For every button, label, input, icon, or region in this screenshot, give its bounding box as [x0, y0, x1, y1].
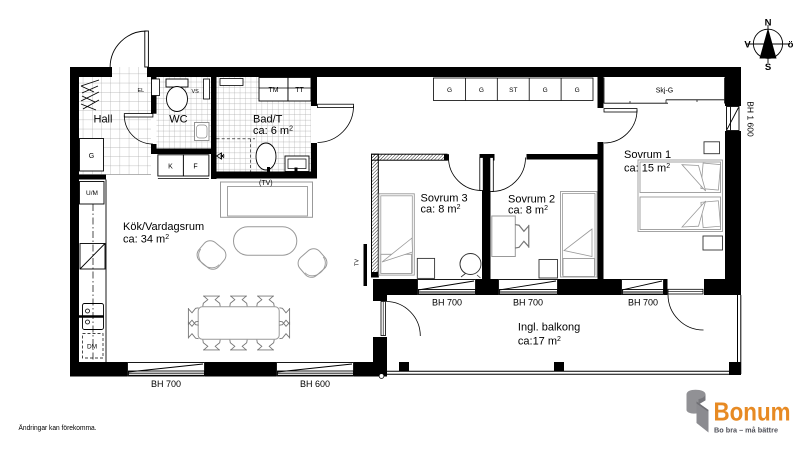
svg-text:TV: TV: [355, 259, 361, 266]
svg-text:BH 700: BH 700: [628, 298, 658, 308]
svg-text:BH 1 600: BH 1 600: [746, 101, 756, 137]
svg-text:TT: TT: [295, 87, 304, 94]
svg-text:ca:17 m2: ca:17 m2: [518, 335, 561, 347]
svg-text:G: G: [479, 87, 484, 94]
svg-text:Bad/T: Bad/T: [253, 114, 283, 126]
svg-text:BH 600: BH 600: [300, 379, 330, 389]
svg-text:ST: ST: [509, 87, 517, 94]
svg-text:Ingl. balkong: Ingl. balkong: [518, 321, 580, 333]
svg-text:G: G: [89, 153, 94, 160]
svg-text:ca: 8 m2: ca: 8 m2: [421, 204, 461, 216]
svg-text:N: N: [765, 18, 772, 29]
svg-text:Hall: Hall: [94, 113, 113, 125]
svg-text:ca: 15 m2: ca: 15 m2: [624, 162, 670, 174]
svg-text:Skj-G: Skj-G: [656, 88, 674, 95]
svg-text:DM: DM: [87, 344, 97, 351]
svg-text:F: F: [193, 164, 197, 171]
svg-text:ö: ö: [788, 40, 794, 51]
svg-text:Ändringar kan förekomma.: Ändringar kan förekomma.: [19, 424, 97, 432]
svg-text:Bonum: Bonum: [714, 397, 791, 427]
svg-text:ca: 34 m2: ca: 34 m2: [123, 234, 169, 246]
svg-text:TM: TM: [268, 87, 278, 94]
svg-text:G: G: [575, 87, 580, 94]
svg-text:BH 700: BH 700: [151, 379, 181, 389]
svg-text:ca: 8 m2: ca: 8 m2: [508, 204, 548, 216]
svg-text:G: G: [543, 87, 548, 94]
svg-text:VS: VS: [192, 89, 200, 95]
svg-text:BH 700: BH 700: [513, 298, 543, 308]
svg-text:Sovrum 1: Sovrum 1: [624, 149, 671, 161]
svg-text:WC: WC: [169, 114, 187, 126]
svg-text:Bo bra – må bättre: Bo bra – må bättre: [714, 426, 778, 435]
svg-text:V: V: [744, 40, 751, 51]
svg-text:ca: 6 m2: ca: 6 m2: [253, 125, 293, 137]
svg-text:G: G: [447, 87, 452, 94]
svg-text:U/M: U/M: [86, 190, 98, 197]
svg-text:BH 700: BH 700: [432, 298, 462, 308]
svg-text:S: S: [765, 62, 771, 73]
svg-text:(TV): (TV): [259, 180, 273, 187]
svg-text:EL: EL: [138, 88, 145, 94]
svg-text:K: K: [168, 164, 173, 171]
svg-text:Kök/Vardagsrum: Kök/Vardagsrum: [123, 221, 204, 233]
